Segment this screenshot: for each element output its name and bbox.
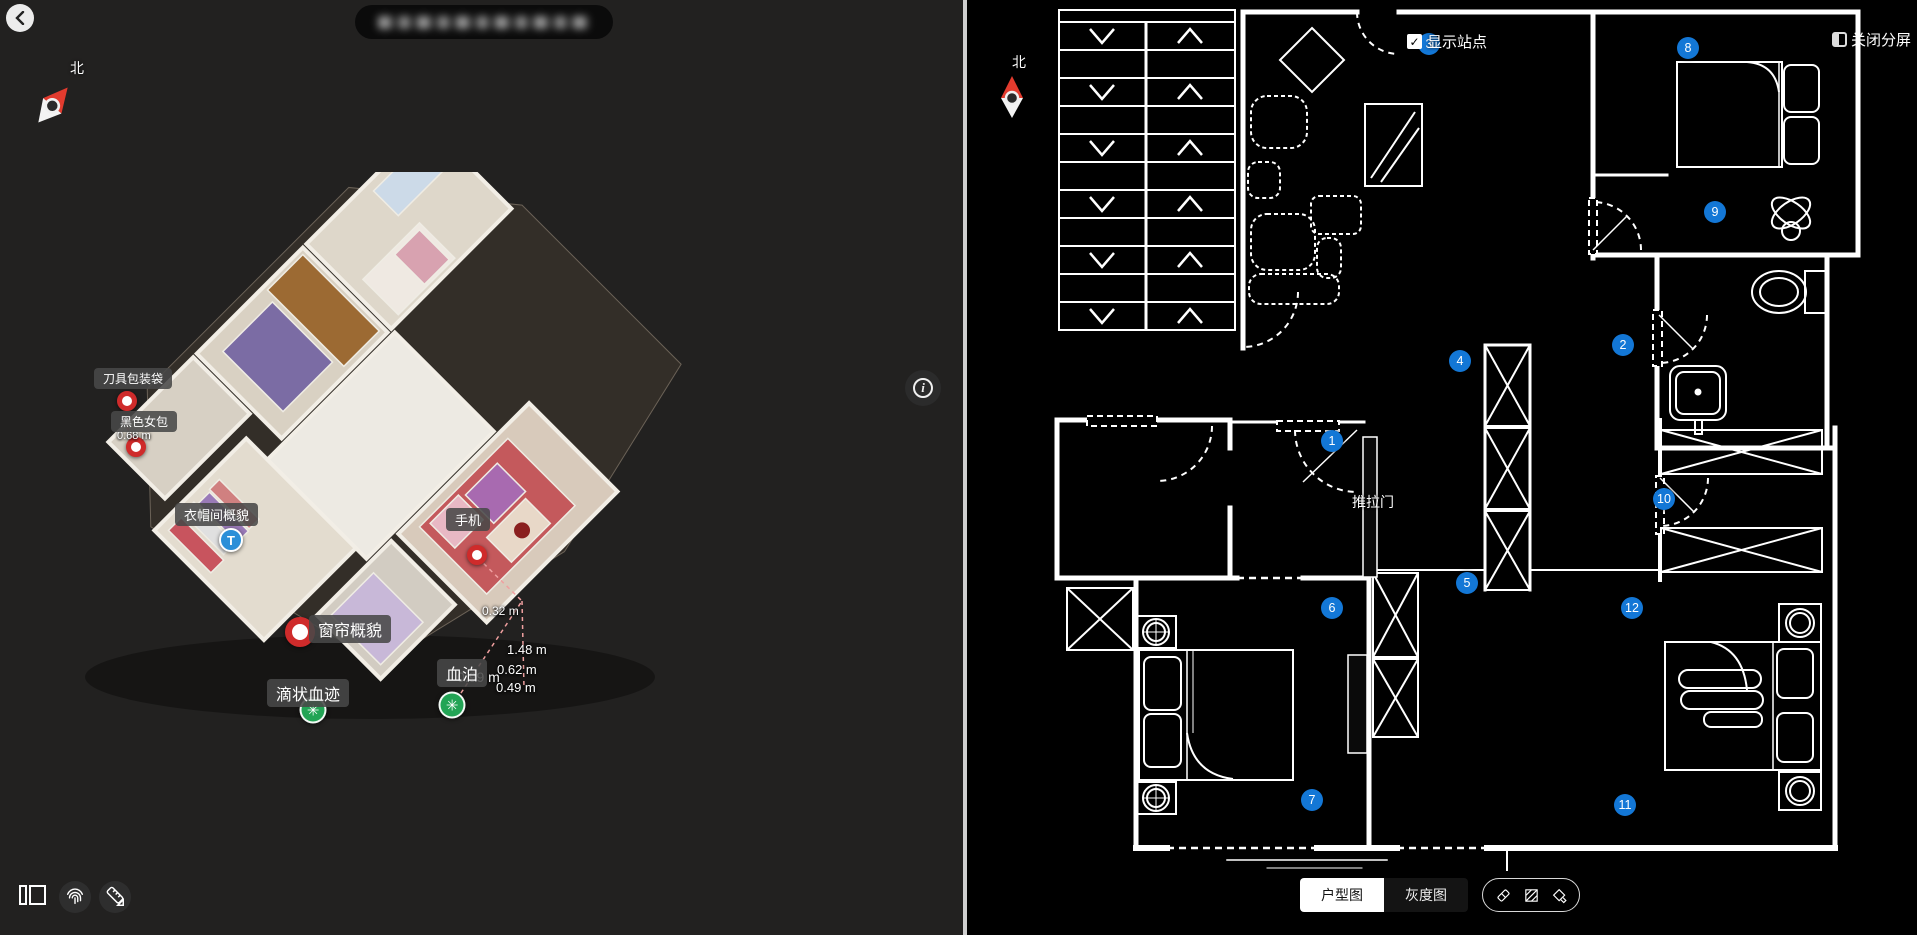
annotation-label-phone: 手机	[446, 508, 490, 531]
station-marker-5[interactable]: 5	[1456, 572, 1478, 594]
north-label: 北	[1012, 52, 1026, 72]
split-view-icon	[18, 884, 47, 906]
annotation-label-drip-blood: 滴状血迹	[267, 679, 349, 707]
station-marker-11[interactable]: 11	[1614, 794, 1636, 816]
bed-top-right	[1677, 62, 1819, 167]
evidence-marker-phone[interactable]	[467, 545, 487, 565]
split-screen-icon	[1832, 32, 1847, 47]
scan-3d-panel: 北	[0, 0, 963, 935]
tab-floorplan[interactable]: 户型图	[1300, 878, 1384, 912]
compass-needle-icon	[999, 74, 1025, 120]
info-button[interactable]: i	[905, 370, 941, 406]
north-label: 北	[70, 58, 84, 78]
bed-bottom-right	[1665, 642, 1821, 770]
evidence-marker-blood-pool[interactable]: ✳	[439, 692, 466, 719]
measurement-text-3: 0.62 m	[497, 662, 537, 677]
compass-north-right: 北	[999, 52, 1026, 120]
annotation-label-knife-bag: 刀具包装袋	[94, 368, 172, 389]
sliding-door-label: 推拉门	[1352, 492, 1394, 512]
wall-openings	[1167, 578, 1487, 848]
dining-table-diamond	[1280, 28, 1344, 92]
compass-needle-icon	[24, 75, 82, 135]
door-leaves	[1303, 216, 1694, 512]
measurement-text-1: 0.32 m	[482, 604, 519, 618]
show-stations-control: ✓ 显示站点	[1407, 31, 1487, 52]
station-marker-4[interactable]: 4	[1449, 350, 1471, 372]
annotation-label-curtain: 窗帘概貌	[309, 615, 391, 643]
floor-plan-svg[interactable]	[967, 0, 1917, 935]
back-button[interactable]	[6, 4, 34, 32]
ruler-icon	[104, 886, 126, 908]
bed-bottom-left	[1139, 650, 1293, 780]
tv-cabinet	[1365, 104, 1422, 186]
tab-grayscale[interactable]: 灰度图	[1384, 878, 1468, 912]
blurred-title-text	[378, 16, 590, 29]
station-marker-8[interactable]: 8	[1677, 37, 1699, 59]
station-marker-7[interactable]: 7	[1301, 789, 1323, 811]
staircase	[1059, 10, 1235, 330]
plant	[1767, 191, 1816, 240]
station-marker-9[interactable]: 9	[1704, 201, 1726, 223]
close-split-label: 关闭分屏	[1851, 29, 1911, 50]
annotation-label-black-bag: 黑色女包	[111, 411, 177, 432]
compass-north-left: 北	[36, 58, 84, 130]
station-marker-6[interactable]: 6	[1321, 597, 1343, 619]
station-marker-10[interactable]: 10	[1653, 488, 1675, 510]
show-stations-checkbox[interactable]: ✓	[1407, 34, 1422, 49]
sink	[1670, 366, 1726, 434]
station-marker-1[interactable]: 1	[1321, 430, 1343, 452]
split-view-button[interactable]	[18, 884, 47, 906]
close-split-button[interactable]: 关闭分屏	[1832, 29, 1911, 50]
nightstands-right	[1779, 604, 1821, 810]
floorplan-toolbar: 户型图 灰度图	[1300, 878, 1580, 912]
evidence-marker-knife-bag[interactable]	[117, 391, 137, 411]
hatch-area-tool-icon[interactable]	[1523, 887, 1540, 904]
evidence-marker-cloakroom[interactable]: T	[219, 528, 243, 552]
wardrobe-door-panel	[1348, 655, 1367, 753]
fingerprint-button[interactable]	[59, 881, 91, 913]
annotation-label-cloakroom: 衣帽间概貌	[175, 503, 258, 526]
measurement-text-2: 1.48 m	[507, 642, 547, 657]
back-chevron-icon	[14, 11, 26, 25]
info-icon: i	[913, 378, 933, 398]
measurement-text-5: 0.49 m	[496, 680, 536, 695]
plan-tools-pill	[1482, 878, 1580, 912]
material-brush-tool-icon[interactable]	[1551, 887, 1568, 904]
toilet	[1752, 271, 1827, 313]
annotation-label-blood-pool: 血泊	[437, 659, 487, 687]
floorplan-panel: 123456789101112 北 ✓ 显示站点 关闭分屏 推拉门 户型图 灰度…	[967, 0, 1917, 935]
sofa-set	[1248, 96, 1361, 304]
session-title-redacted[interactable]	[355, 5, 613, 39]
show-stations-label: 显示站点	[1427, 31, 1487, 52]
station-marker-12[interactable]: 12	[1621, 597, 1643, 619]
measure-tool-button[interactable]	[99, 881, 131, 913]
door-arcs	[1157, 12, 1708, 526]
station-marker-2[interactable]: 2	[1612, 334, 1634, 356]
fingerprint-icon	[64, 886, 86, 908]
panel-divider[interactable]	[963, 0, 967, 935]
walls	[1057, 12, 1858, 870]
eraser-tool-icon[interactable]	[1495, 887, 1512, 904]
